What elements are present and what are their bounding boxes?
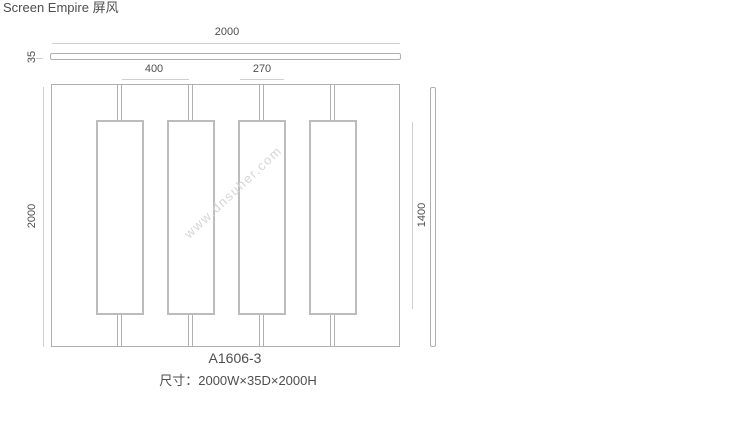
screen-panel	[309, 120, 357, 315]
panel-connector-top	[259, 85, 264, 120]
dim-depth-label: 35	[26, 51, 38, 63]
panel-connector-bottom	[117, 315, 122, 347]
panel-connector-top	[188, 85, 193, 120]
screen-side-view-bar	[430, 87, 436, 347]
page-title: Screen Empire 屏风	[3, 0, 119, 16]
dim-overall-height-label: 2000	[26, 204, 38, 228]
dim-depth-pointer	[36, 58, 43, 59]
dim-panel-height-label: 1400	[416, 203, 428, 227]
dim-panel-spacing-line	[122, 79, 189, 80]
panel-connector-top	[330, 85, 335, 120]
screen-panel	[96, 120, 144, 315]
dim-overall-width-line	[52, 43, 400, 44]
screen-top-view-bar	[50, 53, 401, 60]
panel-connector-bottom	[188, 315, 193, 347]
panel-connector-top	[117, 85, 122, 120]
dim-overall-height-line	[43, 87, 44, 347]
panel-connector-bottom	[259, 315, 264, 347]
dim-panel-height-line	[412, 122, 413, 309]
size-caption: 尺寸：2000W×35D×2000H	[159, 370, 317, 389]
panel-connector-bottom	[330, 315, 335, 347]
dim-panel-spacing-label: 400	[145, 63, 163, 75]
dim-panel-width-line	[240, 79, 284, 80]
dim-overall-width-label: 2000	[215, 26, 239, 38]
dim-panel-width-label: 270	[253, 63, 271, 75]
model-number: A1606-3	[209, 350, 262, 366]
technical-drawing-page: Screen Empire 屏风 2000 35 400 270 www.dns…	[0, 0, 750, 435]
